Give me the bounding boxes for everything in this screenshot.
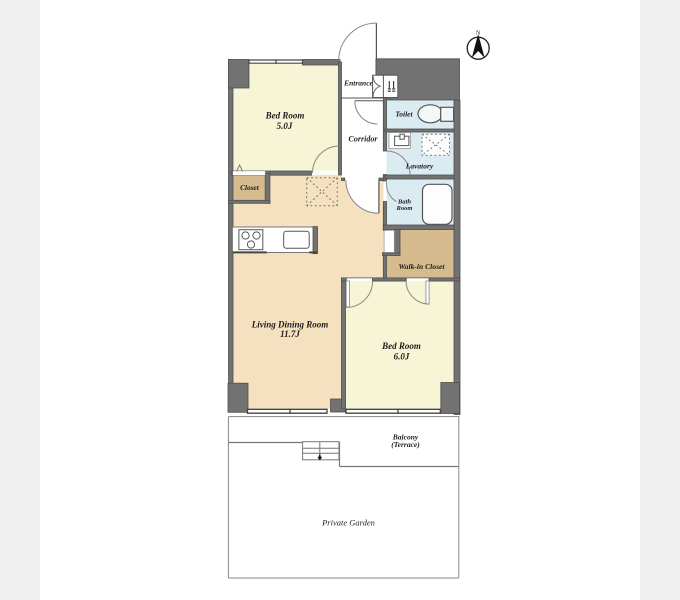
svg-text:6.0J: 6.0J (394, 352, 410, 362)
svg-text:Bed Room: Bed Room (381, 341, 421, 351)
svg-text:Private Garden: Private Garden (321, 517, 375, 527)
svg-text:5.0J: 5.0J (277, 121, 293, 131)
svg-text:Room: Room (396, 205, 413, 212)
svg-text:Entrance: Entrance (343, 78, 373, 87)
svg-text:Corridor: Corridor (349, 134, 379, 143)
svg-text:Toilet: Toilet (395, 110, 413, 119)
svg-text:N: N (476, 31, 481, 37)
svg-text:(Terrace): (Terrace) (391, 440, 420, 449)
svg-text:Lavatory: Lavatory (405, 162, 434, 171)
svg-text:Walk-in Closet: Walk-in Closet (398, 262, 445, 271)
svg-text:Bed Room: Bed Room (265, 111, 305, 121)
svg-text:11.7J: 11.7J (280, 329, 300, 339)
svg-text:Closet: Closet (240, 183, 260, 192)
